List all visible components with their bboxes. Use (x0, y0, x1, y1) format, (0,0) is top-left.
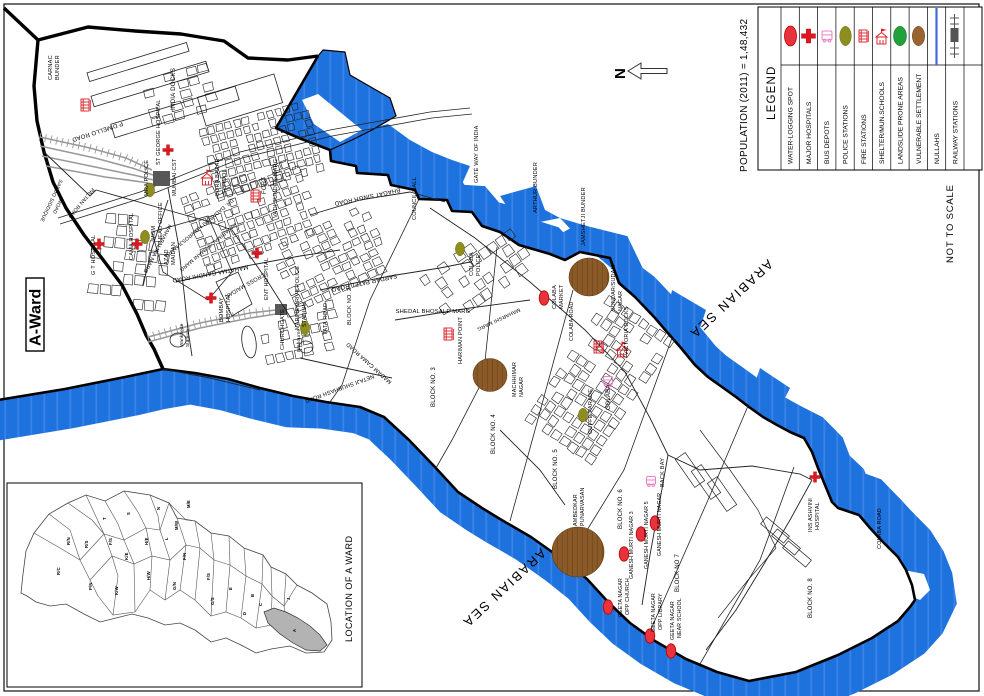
svg-text:BLOCK NO. 4: BLOCK NO. 4 (491, 414, 497, 454)
svg-text:COLABA ROAD: COLABA ROAD (569, 302, 575, 341)
svg-text:K/W: K/W (114, 586, 119, 595)
svg-text:ST GEORGE HOSPITAL: ST GEORGE HOSPITAL (156, 99, 162, 165)
svg-text:SHELTER/MUN.SCHOOLS: SHELTER/MUN.SCHOOLS (879, 81, 886, 164)
svg-text:AMBEDKAR: AMBEDKAR (573, 494, 579, 526)
svg-text:COUNCIL HALL: COUNCIL HALL (412, 177, 418, 220)
svg-text:POLICE STATIONS: POLICE STATIONS (843, 105, 850, 164)
svg-text:K/E: K/E (124, 552, 129, 560)
svg-text:SHEDAL BHOSALE MARG: SHEDAL BHOSALE MARG (396, 309, 471, 315)
svg-text:GEETA NAGAR: GEETA NAGAR (618, 578, 624, 617)
svg-text:GANESH MURTI NAGAR 5: GANESH MURTI NAGAR 5 (644, 501, 650, 569)
svg-text:SUNDAR/SUDAM: SUNDAR/SUDAM (611, 265, 617, 311)
svg-text:E: E (228, 587, 233, 590)
svg-text:N: N (612, 68, 629, 79)
svg-text:F/S: F/S (108, 538, 113, 545)
svg-text:JAMSHETJI BUNDER: JAMSHETJI BUNDER (581, 187, 587, 246)
svg-text:BLOCK NO. 6: BLOCK NO. 6 (618, 489, 624, 529)
svg-text:BLOCK NO 7: BLOCK NO 7 (675, 554, 681, 592)
svg-text:CAMA HOSPITAL: CAMA HOSPITAL (129, 213, 135, 260)
svg-text:F/N: F/N (182, 553, 187, 560)
svg-text:GATE WAY OF INDIA: GATE WAY OF INDIA (474, 125, 480, 183)
svg-text:MARKET: MARKET (559, 284, 565, 309)
svg-text:PUNARVASAN: PUNARVASAN (580, 487, 586, 526)
svg-text:VICTORIA DOCKS: VICTORIA DOCKS (624, 306, 630, 355)
svg-text:A: A (292, 629, 297, 632)
svg-text:COLABA: COLABA (552, 285, 558, 309)
svg-text:RAILWAY STATIONS: RAILWAY STATIONS (952, 100, 959, 164)
svg-text:CHURCHGATE: CHURCHGATE (280, 309, 286, 350)
svg-text:LEGEND: LEGEND (766, 66, 778, 121)
svg-text:SCHOOL: SCHOOL (222, 169, 228, 194)
svg-text:TATA ROAD: TATA ROAD (323, 303, 329, 335)
svg-text:GEETA NAGAR: GEETA NAGAR (670, 601, 676, 640)
svg-text:BORA BAZAR: BORA BAZAR (215, 158, 221, 196)
svg-text:D: D (242, 612, 247, 615)
svg-text:INDIA DOCKS: INDIA DOCKS (170, 68, 177, 110)
svg-text:R/C: R/C (56, 567, 61, 575)
svg-text:ENT HOSPITAL: ENT HOSPITAL (264, 258, 270, 300)
svg-text:G/S: G/S (210, 597, 215, 605)
svg-text:Wankhede: Wankhede (179, 323, 184, 347)
svg-text:HARIMAN POINT: HARIMAN POINT (458, 317, 464, 364)
svg-text:N: N (156, 507, 161, 510)
svg-text:MAJOR HOSPITALS: MAJOR HOSPITALS (806, 101, 813, 164)
svg-text:T: T (102, 517, 107, 520)
svg-text:MACHHIMAR: MACHHIMAR (512, 362, 518, 397)
svg-text:CARNAC: CARNAC (48, 55, 54, 80)
svg-text:INS ASHVINI: INS ASHVINI (808, 498, 814, 532)
svg-text:COLABA: COLABA (606, 384, 612, 410)
svg-text:Stadium: Stadium (185, 329, 190, 347)
svg-text:OPP LIBRARY: OPP LIBRARY (658, 593, 664, 630)
svg-text:S: S (126, 512, 131, 515)
svg-text:OPP CHURCH: OPP CHURCH (625, 578, 631, 615)
svg-text:MRA POLICE: MRA POLICE (144, 160, 150, 196)
svg-text:BLOCK NO. 8: BLOCK NO. 8 (808, 578, 814, 618)
svg-text:HOSPITAL: HOSPITAL (815, 502, 821, 530)
svg-text:NULLAHS: NULLAHS (934, 133, 941, 164)
svg-text:C: C (258, 603, 263, 606)
svg-text:BOMBAY: BOMBAY (219, 297, 225, 322)
svg-text:LOCATION OF A WARD: LOCATION OF A WARD (344, 535, 354, 642)
svg-text:M/W: M/W (174, 521, 179, 530)
svg-text:NOT TO SCALE: NOT TO SCALE (945, 184, 956, 263)
svg-text:MUMBAI-CST: MUMBAI-CST (172, 158, 178, 196)
svg-text:GANESH MURTI NAGAR 3: GANESH MURTI NAGAR 3 (629, 511, 635, 579)
svg-text:CUFFE PARADE: CUFFE PARADE (588, 389, 594, 434)
svg-text:MGM: MGM (151, 226, 157, 240)
svg-text:G/N: G/N (172, 582, 177, 590)
svg-text:GEETA NAGAR: GEETA NAGAR (651, 593, 657, 632)
svg-text:F/S: F/S (206, 573, 211, 580)
svg-text:BUS DEPOTS: BUS DEPOTS (824, 120, 831, 164)
svg-text:MARINE DRIVE POLICE: MARINE DRIVE POLICE (295, 266, 301, 330)
svg-text:P/N: P/N (88, 582, 93, 590)
svg-text:ARTHUR BUNDER: ARTHUR BUNDER (533, 162, 539, 213)
svg-text:NEAR SCHOOL: NEAR SCHOOL (677, 598, 683, 638)
svg-text:COLABA: COLABA (469, 252, 475, 276)
svg-text:Brabourne: Brabourne (296, 329, 301, 352)
svg-text:L: L (164, 537, 169, 540)
svg-text:GANESH MURTI NAGAR: GANESH MURTI NAGAR (657, 493, 663, 556)
svg-text:BLOCK NO. 3: BLOCK NO. 3 (431, 367, 437, 407)
svg-text:BLOCK NO. 5: BLOCK NO. 5 (553, 449, 559, 489)
svg-text:H/E: H/E (144, 537, 149, 545)
svg-text:POPULATION (2011) = 1,48,432: POPULATION (2011) = 1,48,432 (739, 18, 750, 172)
svg-text:BUNDER: BUNDER (55, 55, 61, 80)
svg-text:POLICE: POLICE (476, 254, 482, 276)
svg-text:NAGAR: NAGAR (519, 377, 525, 397)
svg-text:LANDSLIDE PRONE AREAS: LANDSLIDE PRONE AREAS (897, 76, 904, 164)
svg-text:A-Ward: A-Ward (28, 289, 45, 347)
svg-text:B: B (250, 594, 255, 597)
svg-text:COLABA ROAD: COLABA ROAD (877, 508, 883, 549)
svg-text:VADI BUNDER MARG: VADI BUNDER MARG (273, 159, 279, 218)
svg-text:STADIUM: STADIUM (302, 301, 308, 327)
svg-text:M/E: M/E (186, 500, 191, 508)
svg-text:BACK BAY: BACK BAY (660, 458, 666, 487)
svg-text:FIRE STATIONS: FIRE STATIONS (861, 114, 868, 164)
svg-text:R/S: R/S (84, 540, 89, 548)
svg-text:G T HOSPITAL: G T HOSPITAL (91, 235, 97, 275)
svg-text:VULNERABLE SETTLEMENT: VULNERABLE SETTLEMENT (916, 74, 923, 164)
svg-text:WATER-LOGGING SPOT: WATER-LOGGING SPOT (788, 87, 795, 164)
svg-text:R/N: R/N (66, 537, 71, 545)
svg-text:H/W: H/W (146, 571, 151, 580)
svg-text:BLOCK NO. 2: BLOCK NO. 2 (347, 288, 353, 325)
svg-text:FORT: FORT (262, 177, 268, 194)
